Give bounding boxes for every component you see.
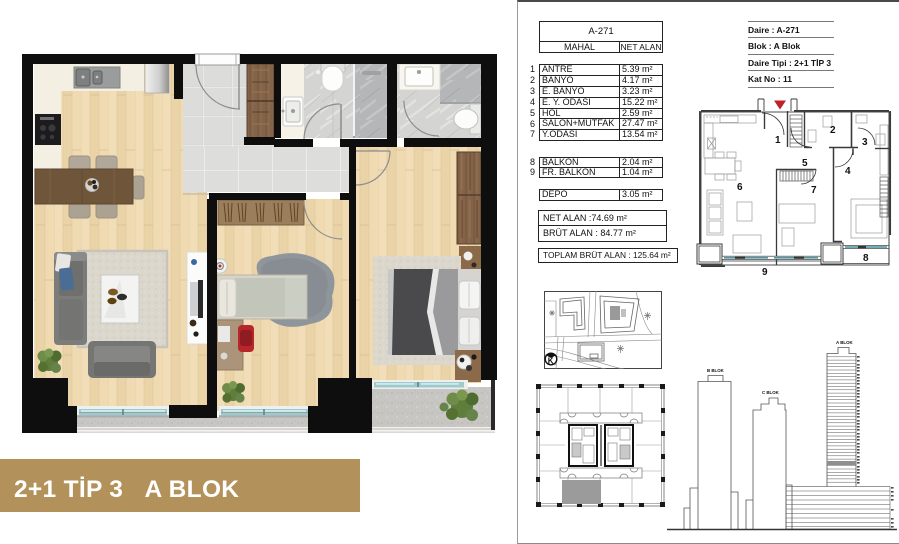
- svg-text:C BLOK: C BLOK: [762, 390, 780, 395]
- svg-text:3: 3: [862, 137, 868, 148]
- svg-text:K: K: [548, 357, 554, 366]
- svg-text:1: 1: [775, 135, 781, 146]
- svg-text:A BLOK: A BLOK: [836, 340, 853, 345]
- svg-text:5: 5: [802, 158, 808, 169]
- svg-text:9: 9: [762, 267, 768, 278]
- svg-text:8: 8: [863, 253, 869, 264]
- svg-text:6: 6: [737, 182, 743, 193]
- svg-text:7: 7: [811, 185, 817, 196]
- svg-text:B BLOK: B BLOK: [707, 368, 725, 373]
- svg-text:4: 4: [845, 166, 851, 177]
- svg-text:2: 2: [830, 125, 836, 136]
